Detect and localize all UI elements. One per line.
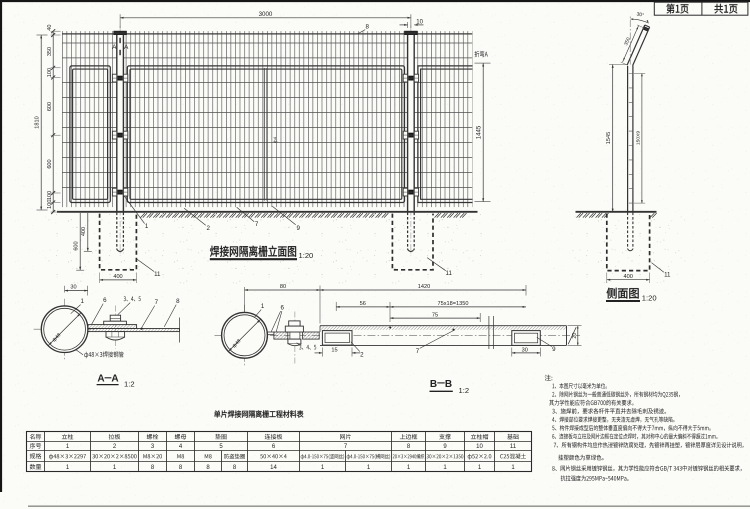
svg-text:400: 400 (113, 274, 122, 280)
svg-text:400: 400 (81, 227, 87, 236)
svg-text:1420: 1420 (418, 284, 430, 290)
svg-text:A: A (112, 44, 117, 51)
svg-text:A: A (111, 374, 118, 385)
svg-text:1: 1 (80, 298, 84, 305)
svg-text:7: 7 (255, 221, 259, 228)
svg-text:400: 400 (624, 274, 633, 280)
svg-text:7: 7 (155, 299, 159, 306)
svg-text:15: 15 (331, 348, 337, 354)
svg-text:1:2: 1:2 (124, 380, 135, 389)
svg-text:1:20: 1:20 (299, 251, 314, 260)
svg-text:1810: 1810 (35, 116, 41, 128)
svg-text:80: 80 (280, 284, 286, 290)
svg-text:75x18=1350: 75x18=1350 (438, 301, 469, 307)
svg-text:600: 600 (47, 102, 53, 111)
svg-text:40: 40 (47, 24, 53, 30)
svg-text:A: A (124, 44, 129, 51)
svg-text:600: 600 (74, 241, 80, 250)
svg-text:100: 100 (47, 68, 53, 77)
svg-text:11: 11 (154, 271, 161, 278)
svg-text:A: A (97, 374, 104, 385)
svg-text:2: 2 (360, 351, 364, 358)
svg-text:7: 7 (416, 348, 420, 355)
svg-text:1: 1 (145, 223, 149, 230)
svg-text:600: 600 (47, 159, 53, 168)
svg-text:8: 8 (365, 24, 369, 31)
svg-text:11: 11 (664, 271, 671, 278)
svg-text:ф4: ф4 (273, 136, 278, 143)
svg-text:1545: 1545 (606, 132, 612, 144)
svg-text:100: 100 (47, 200, 53, 209)
svg-text:B: B (430, 379, 437, 390)
svg-text:100: 100 (47, 191, 53, 200)
svg-text:1: 1 (261, 303, 265, 310)
svg-text:11: 11 (510, 444, 517, 450)
svg-text:1:20: 1:20 (642, 293, 657, 302)
svg-text:1445: 1445 (477, 125, 483, 139)
svg-text:10: 10 (416, 19, 423, 25)
svg-text:20: 20 (572, 333, 578, 339)
svg-text:1:2: 1:2 (459, 386, 470, 395)
svg-text:350: 350 (47, 47, 53, 56)
svg-text:6: 6 (103, 297, 107, 304)
svg-text:6: 6 (280, 305, 284, 312)
svg-text:75: 75 (432, 312, 438, 318)
svg-text:11: 11 (445, 270, 452, 277)
svg-text:2: 2 (206, 225, 210, 232)
svg-text:150X9: 150X9 (636, 131, 642, 145)
svg-text:3000: 3000 (259, 11, 273, 18)
svg-text:14: 14 (270, 465, 277, 471)
svg-text:8: 8 (176, 298, 180, 305)
svg-text:56: 56 (360, 301, 366, 307)
svg-text:9: 9 (296, 225, 300, 232)
svg-text:B: B (445, 379, 452, 390)
svg-text:10: 10 (476, 444, 483, 450)
svg-text:9: 9 (552, 346, 556, 353)
svg-text:30: 30 (522, 348, 528, 354)
svg-text:30: 30 (70, 285, 76, 291)
